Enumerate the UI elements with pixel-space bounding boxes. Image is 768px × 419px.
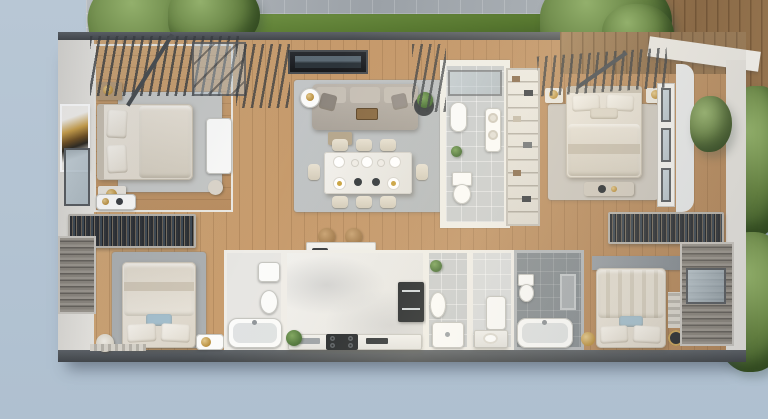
counter-strip [366, 338, 388, 344]
oven-display [402, 290, 420, 292]
dark-bowl [354, 178, 362, 186]
tub-basin [233, 323, 277, 343]
shower-screen [448, 70, 502, 96]
wall-bottom [58, 350, 746, 362]
vanity-basin [483, 333, 498, 344]
sofa [312, 84, 418, 130]
wardrobe-right [608, 212, 724, 244]
dining-chair [308, 164, 320, 180]
bedroom-3-bed [596, 268, 666, 348]
cup [352, 160, 358, 166]
shelf-item [523, 142, 532, 148]
tub-faucet [252, 320, 257, 325]
gas-cooktop [326, 334, 358, 350]
dining-chair [380, 139, 396, 151]
cup [378, 160, 384, 166]
shutter-window [686, 268, 726, 304]
burner [330, 336, 335, 341]
oven-display [402, 308, 420, 310]
perfume-bottle [116, 198, 123, 205]
master-bed [566, 86, 642, 178]
tall-cabinet [486, 296, 506, 330]
tray-item [598, 185, 606, 193]
food [391, 181, 396, 186]
tv-screen [295, 56, 361, 68]
dining-chair [380, 196, 396, 208]
pillow [106, 109, 127, 138]
throw-pillow [391, 93, 409, 111]
dining-chair [356, 196, 372, 208]
pergola-louvres-living-left [236, 44, 290, 108]
shelf-item [512, 76, 520, 82]
pillow [633, 325, 662, 343]
bathtub [228, 318, 282, 348]
left-window [64, 148, 90, 206]
duvet-drape [598, 270, 664, 318]
toilet-bowl [519, 284, 534, 302]
dining-table [324, 152, 412, 194]
plate [362, 157, 372, 167]
throw-pillow [318, 92, 337, 111]
tub-basin [522, 323, 568, 343]
window-glass [661, 88, 671, 122]
dresser [206, 118, 232, 174]
serving-tray [356, 108, 378, 120]
pillow [161, 323, 191, 342]
burner [348, 336, 353, 341]
bedroom-2-bed [122, 262, 196, 348]
decor-bowl [306, 93, 314, 101]
bed-throw [124, 282, 194, 291]
pillow [106, 144, 127, 173]
perfume-bottle [102, 198, 109, 205]
pergola-louvres-living-right [412, 44, 446, 112]
window-glass [661, 168, 671, 202]
shelf-item [513, 116, 521, 122]
wc-vanity [474, 330, 508, 348]
master-window-wall [658, 84, 674, 206]
round-mirror-tray [201, 337, 211, 347]
bed-throw [568, 144, 640, 154]
pillow-small [590, 108, 618, 119]
dining-chair [332, 196, 348, 208]
shelf-column [506, 68, 540, 226]
plate [390, 157, 400, 167]
toilet-bowl [453, 184, 471, 204]
dark-bowl [372, 178, 380, 186]
food [337, 181, 342, 186]
floorplan-render [0, 0, 768, 419]
tub-faucet [542, 320, 547, 325]
gold-side-stool [581, 332, 595, 346]
duvet [139, 106, 191, 178]
oven-column [398, 282, 424, 322]
bathroom-plant [451, 146, 462, 157]
shelf-item [524, 90, 533, 96]
window-glass [661, 128, 671, 162]
burner [330, 343, 335, 348]
toilet-bowl [260, 290, 278, 314]
shower-tray [432, 322, 464, 348]
dining-chair [332, 139, 348, 151]
towel-shelf [485, 108, 501, 152]
pillow [600, 325, 629, 343]
tray-item [611, 186, 617, 192]
dining-chair [356, 139, 372, 151]
kitchen-plant [286, 330, 302, 346]
sofa-back-cushion [350, 87, 380, 103]
rolled-towel [488, 113, 498, 123]
shower-drain [445, 332, 450, 337]
plate [334, 157, 344, 167]
vanity-table [96, 194, 136, 210]
wall-basin [450, 102, 467, 132]
rolled-towel [488, 130, 498, 140]
stool [208, 180, 223, 195]
burner [348, 343, 353, 348]
pedestal-basin [430, 292, 446, 318]
towel-niche [560, 274, 576, 310]
foot-bench [584, 182, 634, 196]
left-louvre-blinds [60, 238, 94, 312]
vanity-basin [258, 262, 280, 282]
striped-runner [90, 344, 146, 351]
dining-chair [416, 164, 428, 180]
pillow [127, 323, 157, 342]
headboard [97, 104, 104, 180]
tv-panel [290, 52, 366, 72]
shelf-item [513, 170, 521, 176]
shelf-plant [430, 260, 442, 272]
shelf-item [522, 196, 531, 202]
bedroom-1-bed [97, 104, 193, 180]
bathtub [517, 318, 573, 348]
